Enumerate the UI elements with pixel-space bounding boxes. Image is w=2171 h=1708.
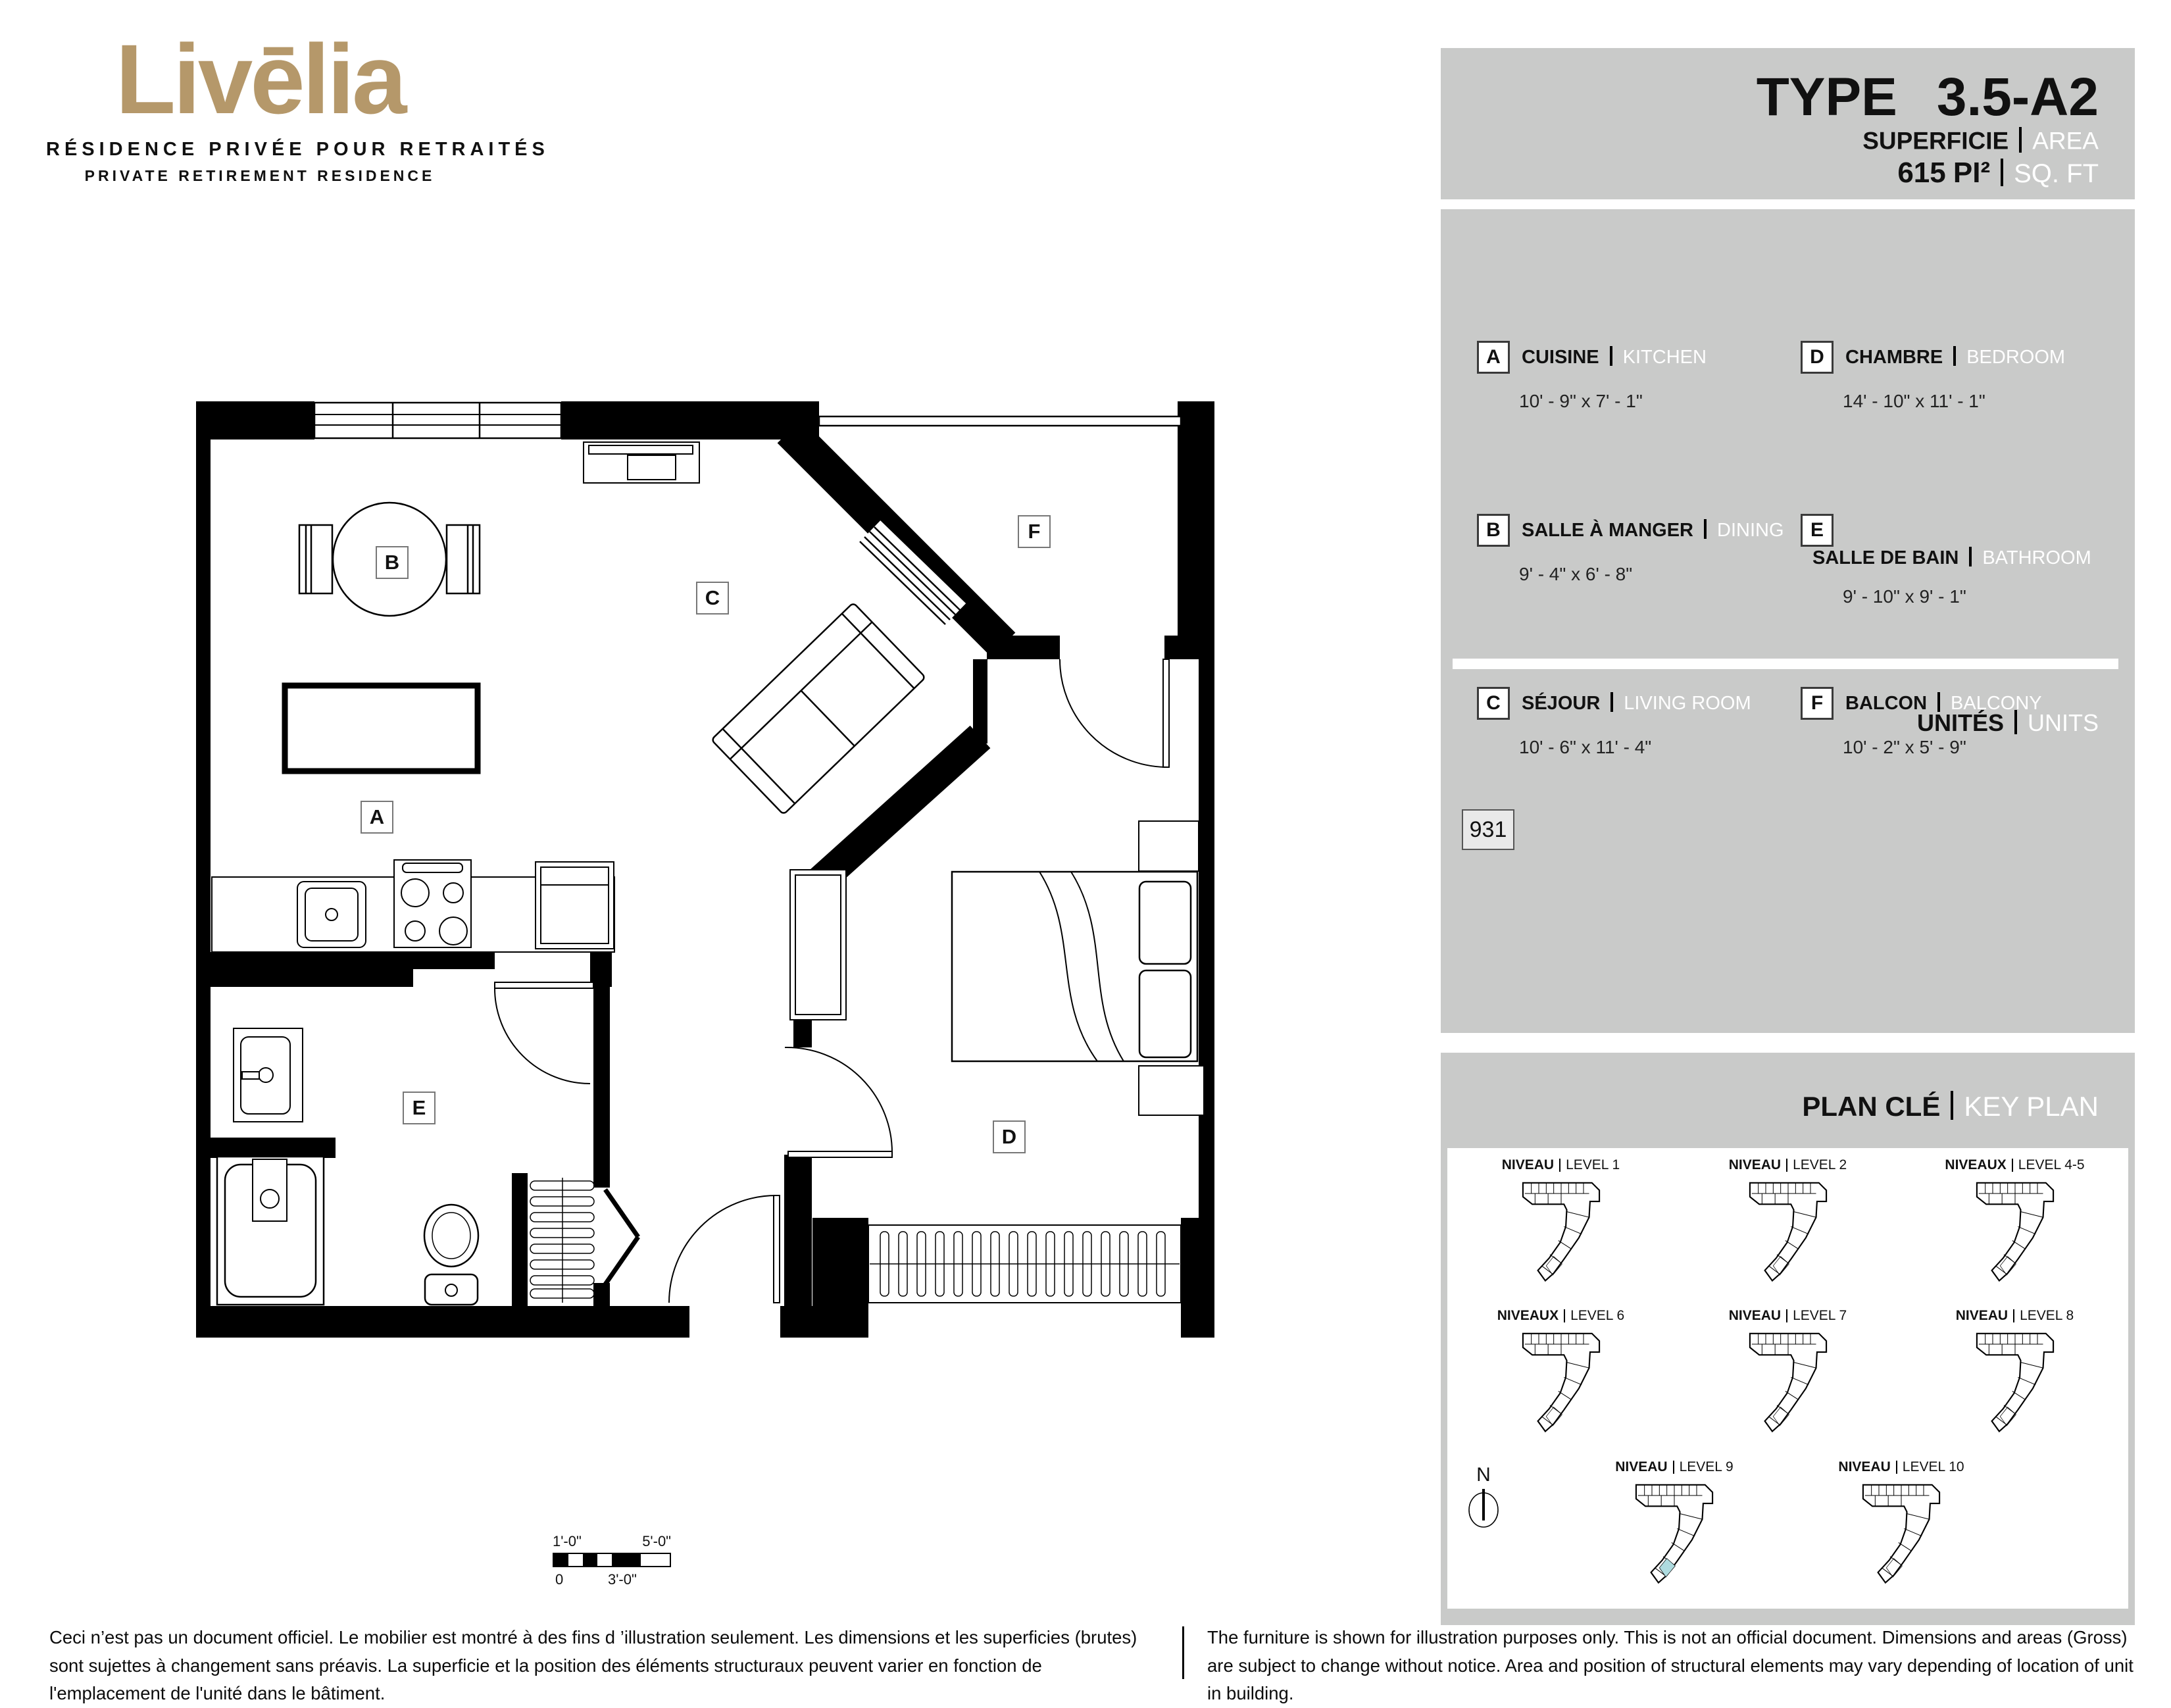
scale-bar: 1'-0" 5'-0" 0 3'-0" — [553, 1533, 671, 1592]
legend-room-names: SÉJOURLIVING ROOM — [1522, 692, 1751, 715]
legend-letter-box: F — [1801, 687, 1834, 720]
legend-item-B: BSALLE À MANGERDINING9' - 4" x 6' - 8" — [1477, 514, 1786, 585]
building-outline-icon — [1746, 1325, 1830, 1437]
key-plan-level-label: NIVEAUXLEVEL 6 — [1447, 1308, 1674, 1324]
units-heading: UNITÉSUNITS — [1917, 709, 2099, 737]
legend-panel: ACUISINEKITCHEN10' - 9" x 7' - 1"BSALLE … — [1441, 209, 2135, 1033]
disclaimer-french: Ceci n’est pas un document officiel. Le … — [49, 1624, 1161, 1708]
building-outline-icon — [1519, 1325, 1603, 1437]
tv-cabinet — [584, 442, 699, 483]
scale-label-1ft: 1'-0" — [553, 1533, 582, 1550]
legend-item-E: ESALLE DE BAINBATHROOM9' - 10" x 9' - 1" — [1801, 514, 2110, 607]
room-label-balcony: F — [1018, 515, 1051, 548]
key-plan-level-level-7: NIVEAULEVEL 7 — [1674, 1303, 1901, 1437]
dresser — [790, 870, 846, 1020]
key-plan-level-level-10: NIVEAULEVEL 10 — [1788, 1454, 2015, 1588]
key-plan-level-label: NIVEAUXLEVEL 4-5 — [1901, 1157, 2128, 1173]
key-plan-box: NIVEAULEVEL 1NIVEAULEVEL 2NIVEAUXLEVEL 4… — [1447, 1148, 2128, 1609]
kitchen-island — [285, 686, 478, 771]
scale-label-3ft: 3'-0" — [608, 1571, 637, 1588]
key-plan-row-2: NIVEAUXLEVEL 6NIVEAULEVEL 7NIVEAULEVEL 8 — [1447, 1303, 2128, 1453]
key-plan-level-label: NIVEAULEVEL 2 — [1674, 1157, 1901, 1173]
building-outline-icon — [1973, 1325, 2057, 1437]
building-outline-icon — [1859, 1476, 1943, 1588]
legend-room-dims: 10' - 9" x 7' - 1" — [1519, 391, 1786, 412]
legend-letter-box: A — [1477, 341, 1510, 374]
scale-label-0: 0 — [555, 1571, 563, 1588]
bed — [952, 872, 1197, 1061]
legend-room-dims: 10' - 2" x 5' - 9" — [1843, 737, 2110, 758]
building-outline-icon — [1973, 1174, 2057, 1286]
unit-type-panel: TYPE3.5-A2 SUPERFICIEAREA 615 PI²SQ. FT — [1441, 48, 2135, 199]
key-plan-level-level-6: NIVEAUXLEVEL 6 — [1447, 1303, 1674, 1437]
building-outline-icon — [1632, 1476, 1716, 1588]
key-plan-level-level-1: NIVEAULEVEL 1 — [1447, 1152, 1674, 1286]
legend-room-names: SALLE DE BAINBATHROOM — [1812, 547, 2091, 569]
key-plan-title: PLAN CLÉKEY PLAN — [1802, 1091, 2099, 1122]
key-plan-level-label: NIVEAULEVEL 1 — [1447, 1157, 1674, 1173]
scale-label-5ft: 5'-0" — [642, 1533, 671, 1550]
key-plan-level-label: NIVEAULEVEL 7 — [1674, 1308, 1901, 1324]
room-label-kitchen: A — [361, 801, 393, 834]
key-plan-grid: NIVEAULEVEL 1NIVEAULEVEL 2NIVEAUXLEVEL 4… — [1447, 1152, 2128, 1605]
legend-room-names: CUISINEKITCHEN — [1522, 346, 1707, 368]
north-arrow-icon — [1465, 1486, 1502, 1530]
disclaimer-english: The furniture is shown for illustration … — [1207, 1624, 2141, 1708]
legend-room-dims: 9' - 4" x 6' - 8" — [1519, 564, 1786, 585]
balcony-railing — [819, 416, 1181, 426]
key-plan-level-level-4-5: NIVEAUXLEVEL 4-5 — [1901, 1152, 2128, 1286]
room-legend: ACUISINEKITCHEN10' - 9" x 7' - 1"BSALLE … — [1477, 341, 2109, 815]
unit-type-title: TYPE3.5-A2 — [1757, 66, 2099, 128]
legend-item-A: ACUISINEKITCHEN10' - 9" x 7' - 1" — [1477, 341, 1786, 412]
room-label-bedroom: D — [993, 1120, 1026, 1153]
room-label-living: C — [696, 582, 729, 615]
closet-shelves — [530, 1178, 594, 1303]
key-plan-level-level-9: NIVEAULEVEL 9 — [1561, 1454, 1788, 1588]
key-plan-row-1: NIVEAULEVEL 1NIVEAULEVEL 2NIVEAUXLEVEL 4… — [1447, 1152, 2128, 1303]
legend-room-names: SALLE À MANGERDINING — [1522, 519, 1784, 541]
nightstand-bottom — [1139, 1066, 1204, 1115]
building-outline-icon — [1519, 1174, 1603, 1286]
legend-room-names: CHAMBREBEDROOM — [1845, 346, 2065, 368]
legend-letter-box: B — [1477, 514, 1510, 547]
sofa — [711, 603, 926, 815]
key-plan-level-label: NIVEAULEVEL 8 — [1901, 1308, 2128, 1324]
livelia-logo: Livēlia — [46, 25, 474, 134]
toilet — [424, 1205, 478, 1305]
legend-letter-box: D — [1801, 341, 1834, 374]
bedroom-window-strip — [868, 1225, 1181, 1303]
floor-plan-drawing — [184, 368, 1250, 1355]
legend-room-dims: 14' - 10" x 11' - 1" — [1843, 391, 2110, 412]
room-label-dining: B — [376, 546, 409, 579]
key-plan-panel: PLAN CLÉKEY PLAN NIVEAULEVEL 1NIVEAULEVE… — [1441, 1053, 2135, 1625]
scale-bar-graphic — [553, 1553, 671, 1567]
legend-letter-box: C — [1477, 687, 1510, 720]
white-divider — [1453, 659, 2118, 669]
legend-item-D: DCHAMBREBEDROOM14' - 10" x 11' - 1" — [1801, 341, 2110, 412]
key-plan-level-label: NIVEAULEVEL 10 — [1788, 1459, 2015, 1475]
unit-number-badge: 931 — [1462, 809, 1514, 850]
brand-block: Livēlia RÉSIDENCE PRIVÉE POUR RETRAITÉS … — [46, 25, 474, 185]
room-label-bathroom: E — [403, 1092, 436, 1124]
key-plan-level-level-2: NIVEAULEVEL 2 — [1674, 1152, 1901, 1286]
vanity-sink — [234, 1028, 303, 1122]
key-plan-row-3: NIVEAULEVEL 9NIVEAULEVEL 10 — [1447, 1454, 2128, 1605]
disclaimer-divider — [1182, 1626, 1184, 1679]
kitchen-counter — [212, 860, 614, 952]
north-label: N — [1464, 1464, 1503, 1486]
bathtub — [217, 1157, 324, 1305]
legend-room-dims: 10' - 6" x 11' - 4" — [1519, 737, 1786, 758]
key-plan-level-label: NIVEAULEVEL 9 — [1561, 1459, 1788, 1475]
bedroom-door — [785, 1047, 892, 1157]
legend-letter-box: E — [1801, 514, 1834, 547]
closet-bifold-door — [605, 1190, 638, 1284]
brand-tagline-en: PRIVATE RETIREMENT RESIDENCE — [46, 167, 474, 185]
legend-room-dims: 9' - 10" x 9' - 1" — [1843, 586, 2110, 607]
legend-item-C: CSÉJOURLIVING ROOM10' - 6" x 11' - 4" — [1477, 687, 1786, 758]
brand-tagline-fr: RÉSIDENCE PRIVÉE POUR RETRAITÉS — [46, 139, 474, 161]
north-arrow: N — [1464, 1464, 1503, 1533]
key-plan-level-level-8: NIVEAULEVEL 8 — [1901, 1303, 2128, 1437]
entry-door — [669, 1195, 780, 1303]
area-labels: SUPERFICIEAREA — [1862, 127, 2099, 155]
balcony-door — [1060, 659, 1169, 767]
building-outline-icon — [1746, 1174, 1830, 1286]
bathroom-door — [495, 982, 593, 1084]
kitchen-window — [314, 403, 561, 438]
nightstand-top — [1139, 821, 1199, 871]
area-value: 615 PI²SQ. FT — [1897, 157, 2099, 189]
